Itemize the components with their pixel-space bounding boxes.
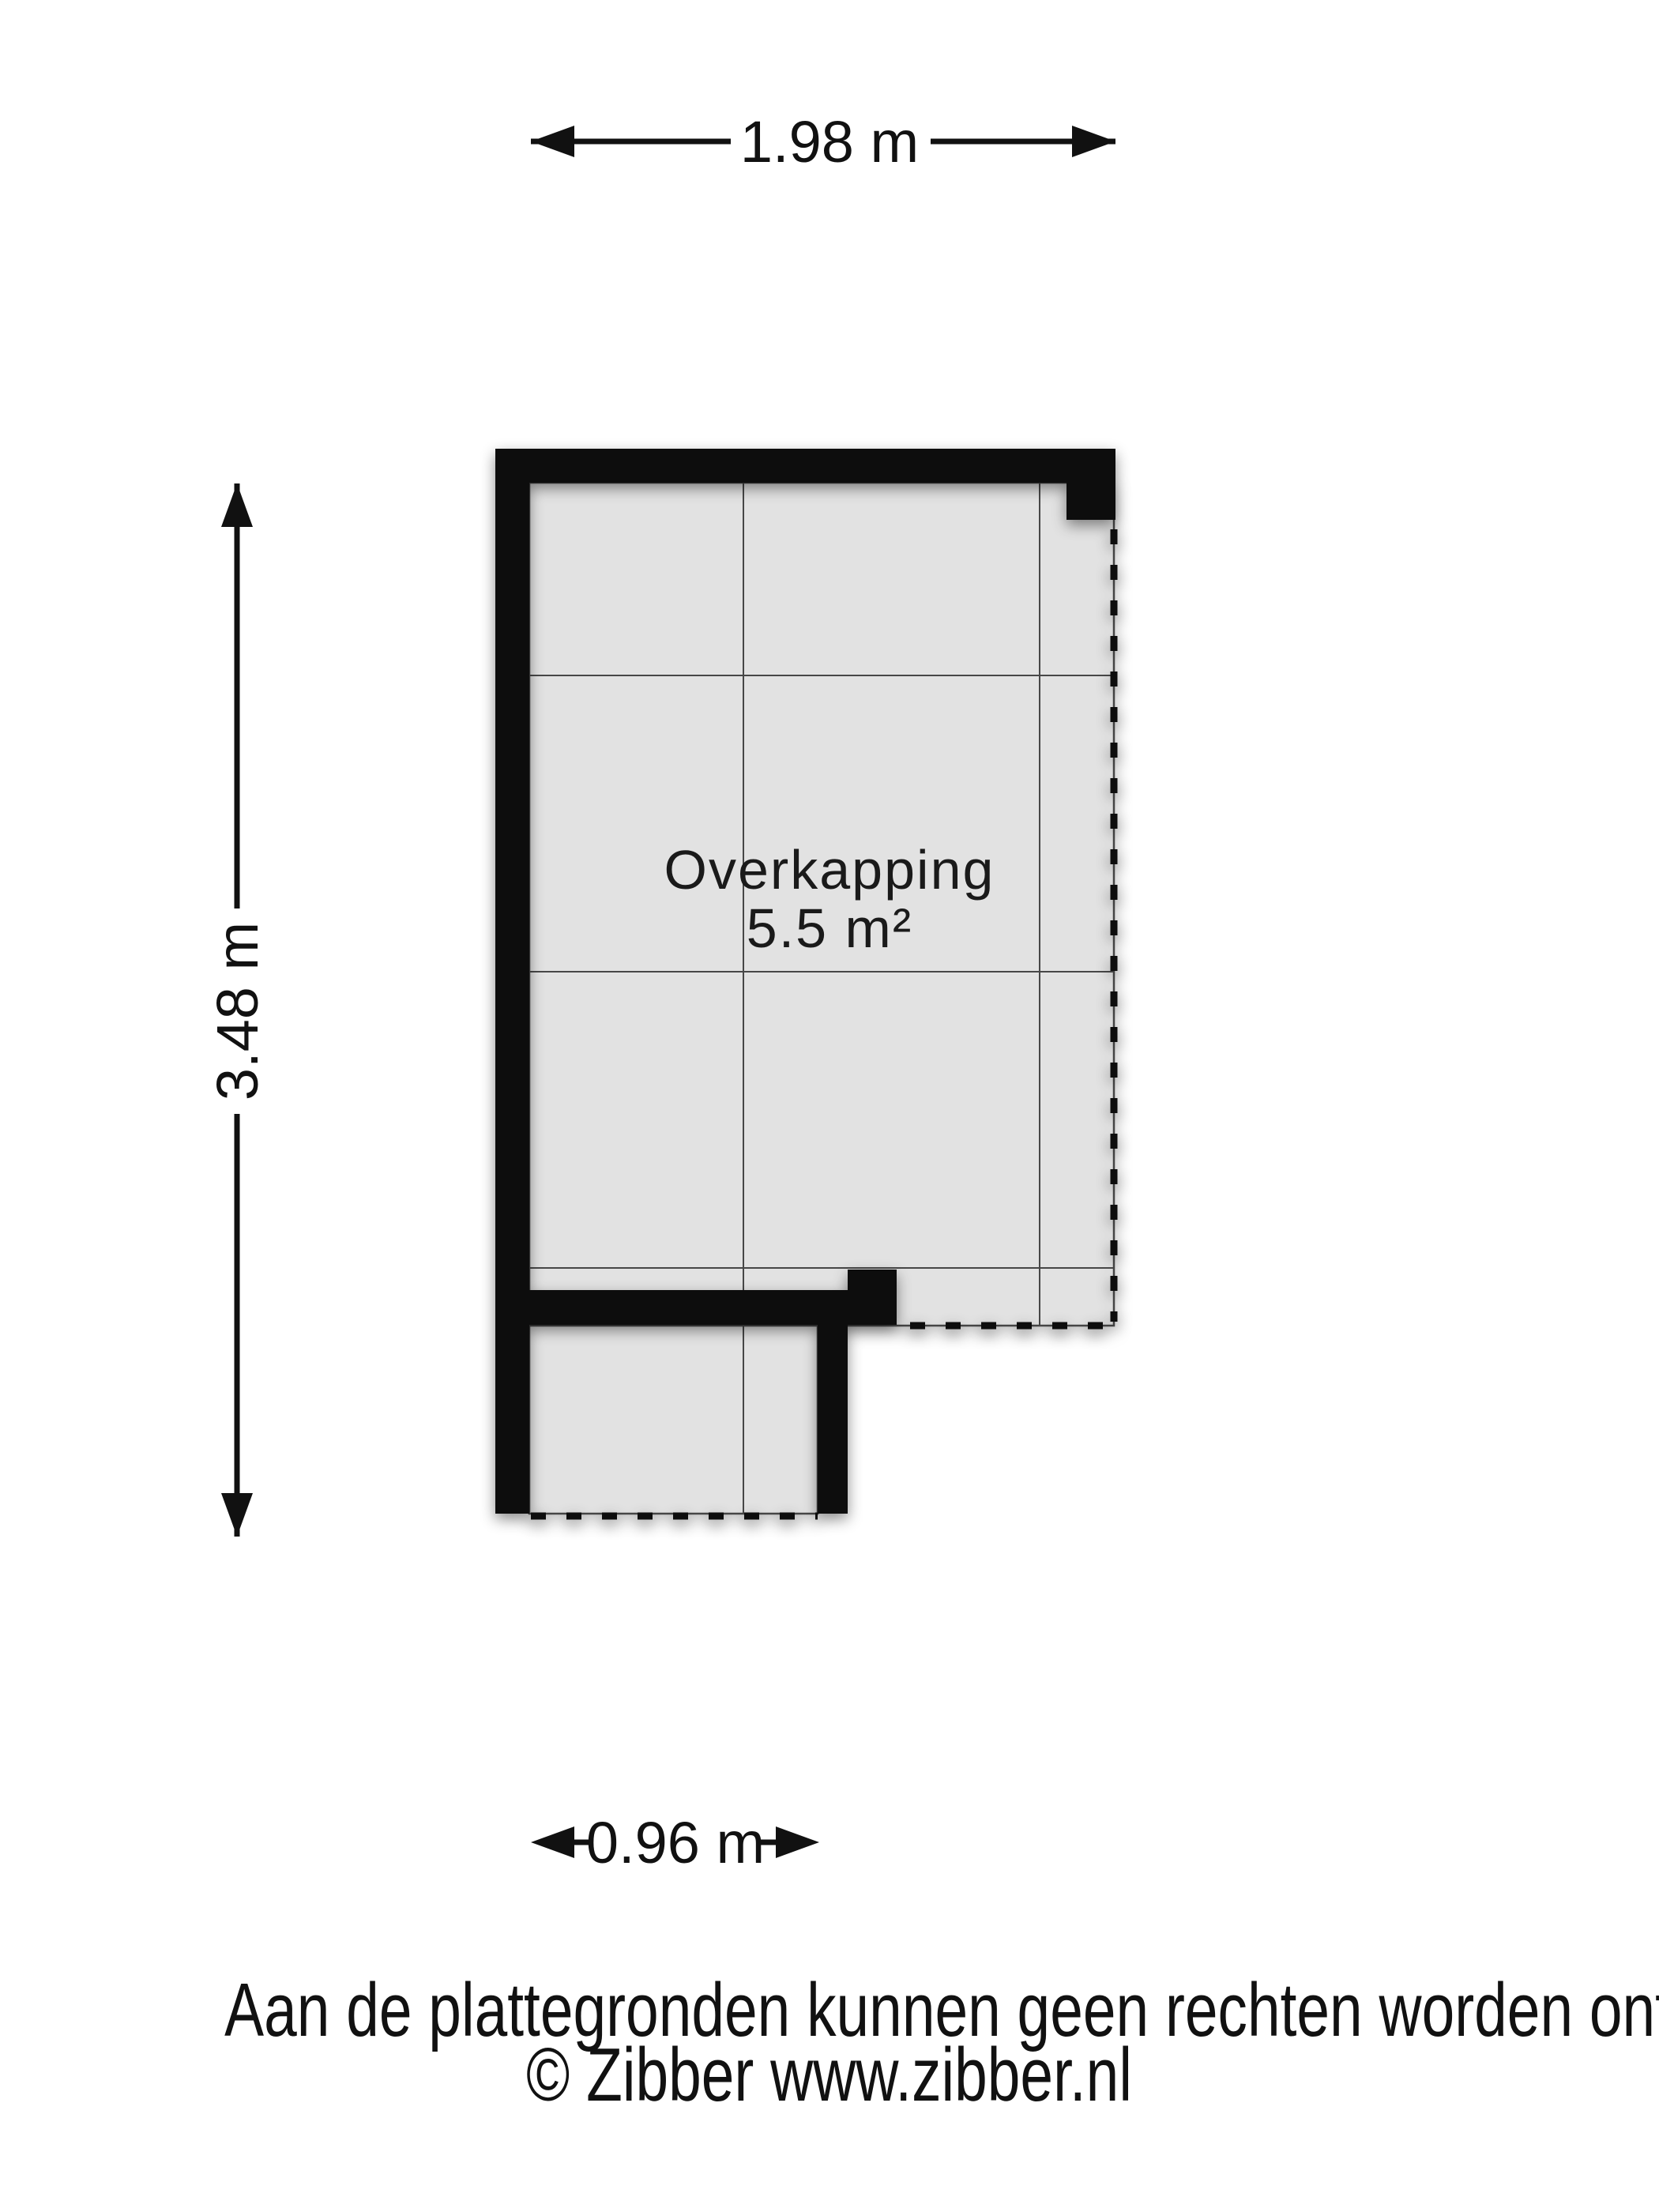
arrow-left-icon <box>531 126 574 157</box>
room-area-label: 5.5 m² <box>747 897 912 959</box>
dimension-left: 3.48 m <box>205 483 270 1537</box>
dimension-top-label: 1.98 m <box>740 109 919 175</box>
wall-left <box>495 449 529 1514</box>
dimension-bottom: 0.96 m <box>531 1810 819 1875</box>
wall-top <box>495 449 1115 483</box>
arrow-right-icon <box>776 1826 819 1858</box>
dimension-left-label: 3.48 m <box>205 922 270 1100</box>
footer-copyright-text: © Zibber www.zibber.nl <box>527 2037 1133 2113</box>
floorplan-page: Overkapping 5.5 m² 1.98 m 3.48 m 0.96 m <box>0 0 1659 2212</box>
extension-floor-area <box>529 1326 818 1514</box>
arrow-right-icon <box>1072 126 1115 157</box>
footer-copyright: © Zibber www.zibber.nl <box>0 2037 1659 2113</box>
dimension-top: 1.98 m <box>531 109 1115 175</box>
wall-corner-block <box>1066 483 1115 520</box>
arrow-up-icon <box>221 483 253 527</box>
arrow-down-icon <box>221 1493 253 1537</box>
wall-interior-step <box>848 1270 897 1292</box>
arrow-left-icon <box>531 1826 574 1858</box>
floorplan-svg: Overkapping 5.5 m² 1.98 m 3.48 m 0.96 m <box>0 0 1659 2212</box>
wall-extension-right <box>818 1325 848 1514</box>
wall-interior <box>529 1290 897 1325</box>
room-name-label: Overkapping <box>664 839 995 901</box>
dimension-bottom-label: 0.96 m <box>586 1810 765 1875</box>
